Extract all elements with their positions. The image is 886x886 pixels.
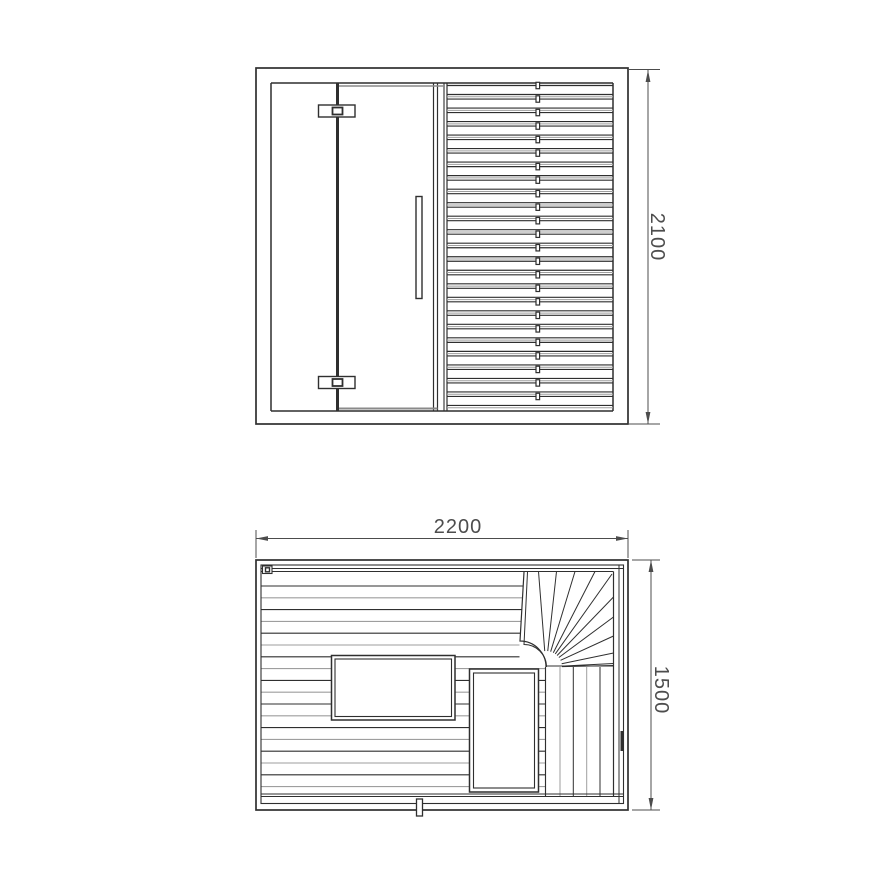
sauna-technical-drawing: 210022001500 bbox=[0, 0, 886, 886]
door-handle bbox=[416, 197, 422, 299]
plan-door-handle bbox=[621, 731, 625, 751]
dimension-2100: 2100 bbox=[629, 70, 668, 425]
dimension-width-label: 2200 bbox=[434, 516, 483, 538]
corner-fan-boards bbox=[520, 572, 614, 668]
plan-corner-detail bbox=[263, 566, 273, 574]
plan-inner-rect-right bbox=[470, 669, 539, 792]
glass-door bbox=[338, 83, 445, 411]
door-hinge-bottom bbox=[319, 377, 356, 389]
front-elevation-view: 2100 bbox=[256, 68, 668, 424]
side-boards-vertical bbox=[546, 572, 614, 797]
slat-wall-panel bbox=[447, 82, 613, 411]
dimension-height-label: 2100 bbox=[646, 213, 668, 262]
technical-drawing-page: 210022001500 bbox=[0, 0, 886, 886]
plan-inner-rect-left bbox=[332, 656, 456, 721]
dimension-2200: 2200 bbox=[256, 516, 628, 558]
plan-view: 22001500 bbox=[256, 516, 672, 816]
dimension-1500: 1500 bbox=[632, 560, 672, 810]
frame-inner-lines bbox=[271, 83, 613, 411]
dimension-depth-label: 1500 bbox=[650, 666, 672, 715]
door-hinge-top bbox=[319, 105, 356, 117]
plan-drain-block bbox=[417, 799, 423, 816]
